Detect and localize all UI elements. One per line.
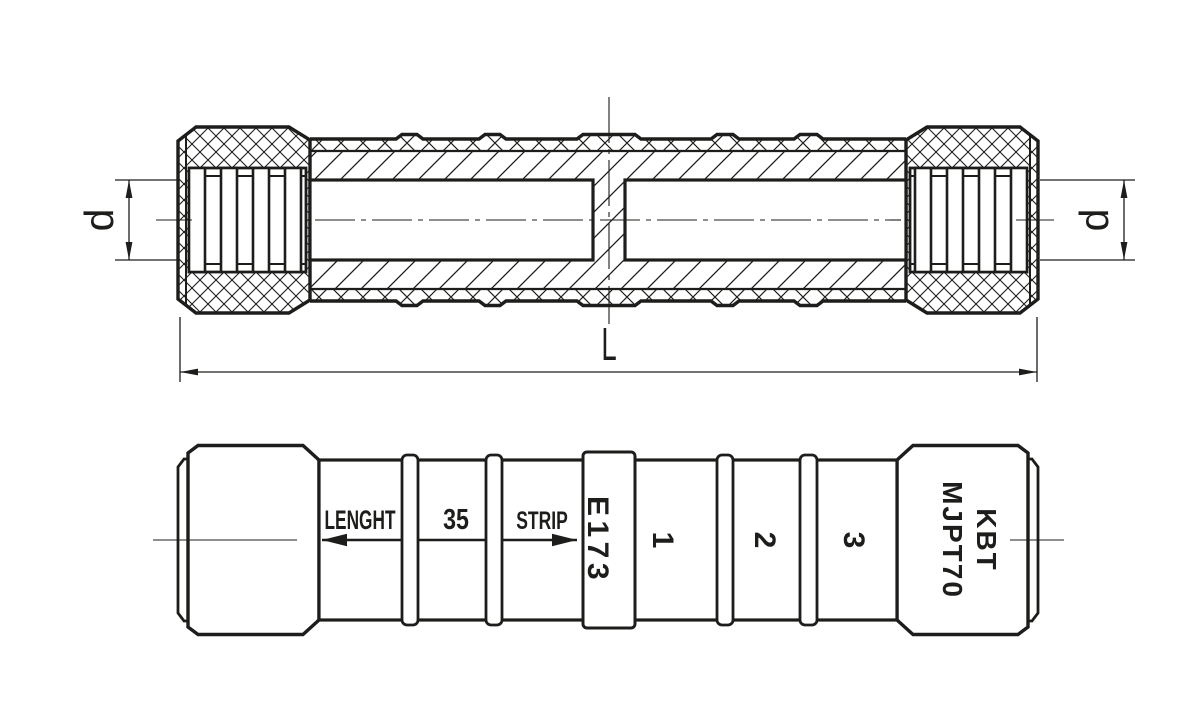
- dimension-d-right: d: [1040, 180, 1135, 260]
- section-view: d d L: [76, 97, 1135, 382]
- crimp-mark-1: 1: [646, 532, 679, 549]
- model-text: MJPT70: [937, 481, 968, 599]
- diameter-label-left: d: [76, 209, 122, 232]
- length-label: L: [601, 320, 616, 371]
- rib-3: [717, 455, 733, 625]
- section-left-cap: [178, 127, 310, 313]
- crimp-mark-3: 3: [837, 532, 870, 549]
- arrowhead-right-icon: [1019, 369, 1037, 376]
- side-view: LENGHT 35 STRIP E173 1 2 3 KBT: [153, 446, 1064, 635]
- arrowhead-down-icon: [1121, 242, 1128, 260]
- technical-drawing: d d L: [0, 0, 1200, 725]
- rib-2: [486, 455, 502, 625]
- crimp-mark-2: 2: [748, 532, 781, 549]
- drawing-canvas: d d L: [0, 0, 1200, 725]
- brand-text: KBT: [971, 508, 1002, 572]
- dimension-L: L: [180, 317, 1037, 382]
- diameter-label-right: d: [1071, 209, 1117, 232]
- arrowhead-left-icon: [180, 369, 198, 376]
- rib-4: [800, 455, 817, 625]
- arrowhead-down-icon: [126, 242, 133, 260]
- strip-label: STRIP: [516, 506, 567, 535]
- arrowhead-up-icon: [126, 180, 133, 198]
- drawing-root: d d L: [76, 97, 1135, 635]
- rib-1: [402, 455, 418, 625]
- die-code-text: E173: [581, 496, 614, 584]
- arrowhead-up-icon: [1121, 180, 1128, 198]
- strip-length-value: 35: [443, 502, 469, 535]
- strip-arrow-label: LENGHT: [324, 504, 395, 535]
